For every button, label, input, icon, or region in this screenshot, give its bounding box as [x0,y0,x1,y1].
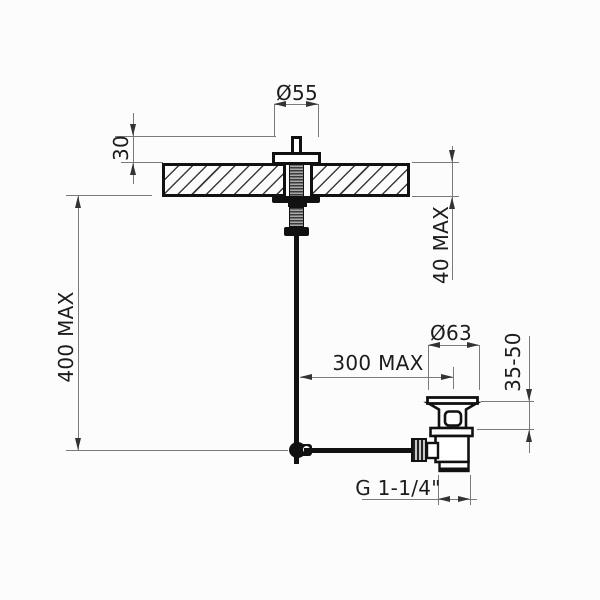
dim-300-line [300,377,453,378]
dim-label-rod-length-max: 400 MAX [53,277,79,397]
dim-label-knob-height: 30 [108,118,134,178]
waste-tailpiece-thread-end [439,468,470,472]
dim-40-ext-top [412,162,459,163]
countertop-section-right [310,163,410,197]
dim-300-centre-tick [453,367,454,389]
arrowhead-down-icon [449,150,455,162]
rod-coupler-nut [284,227,309,236]
arrowhead-up-icon [526,430,532,442]
countertop-section-left [162,163,286,197]
rod-entry-boss [427,443,438,458]
vertical-lift-rod [294,236,299,464]
dim-label-basin-thickness-range: 35-50 [500,312,526,412]
technical-drawing: Ø55 30 400 MAX 40 MAX Ø63 300 MAX 35-50 … [0,0,600,600]
locknut [272,196,320,203]
arrowhead-up-icon [75,196,81,208]
dim-label-knob-diameter: Ø55 [247,80,347,106]
pull-knob-flange [272,152,321,165]
dim-30-ext-top [115,136,276,137]
arrowhead-down-icon [75,438,81,450]
arrowhead-down-icon [526,389,532,401]
dim-label-reach-max: 300 MAX [308,350,448,376]
dim-label-deck-thickness-max: 40 MAX [428,185,454,305]
dim-63-ext-right [479,345,480,390]
dim-55-ext-right [318,104,319,137]
horizontal-link-rod [304,448,414,453]
waste-square-opening [445,412,461,426]
dim-400-ext-bottom [66,450,288,451]
waste-main-body [436,436,469,462]
threaded-shank [289,164,304,197]
threaded-shank-lower [289,207,304,227]
dim-label-thread-size: G 1-1/4" [323,475,473,501]
waste-top-rim [428,398,478,404]
dim-label-waste-diameter: Ø63 [401,320,501,346]
dim-55-ext-left [274,104,275,137]
